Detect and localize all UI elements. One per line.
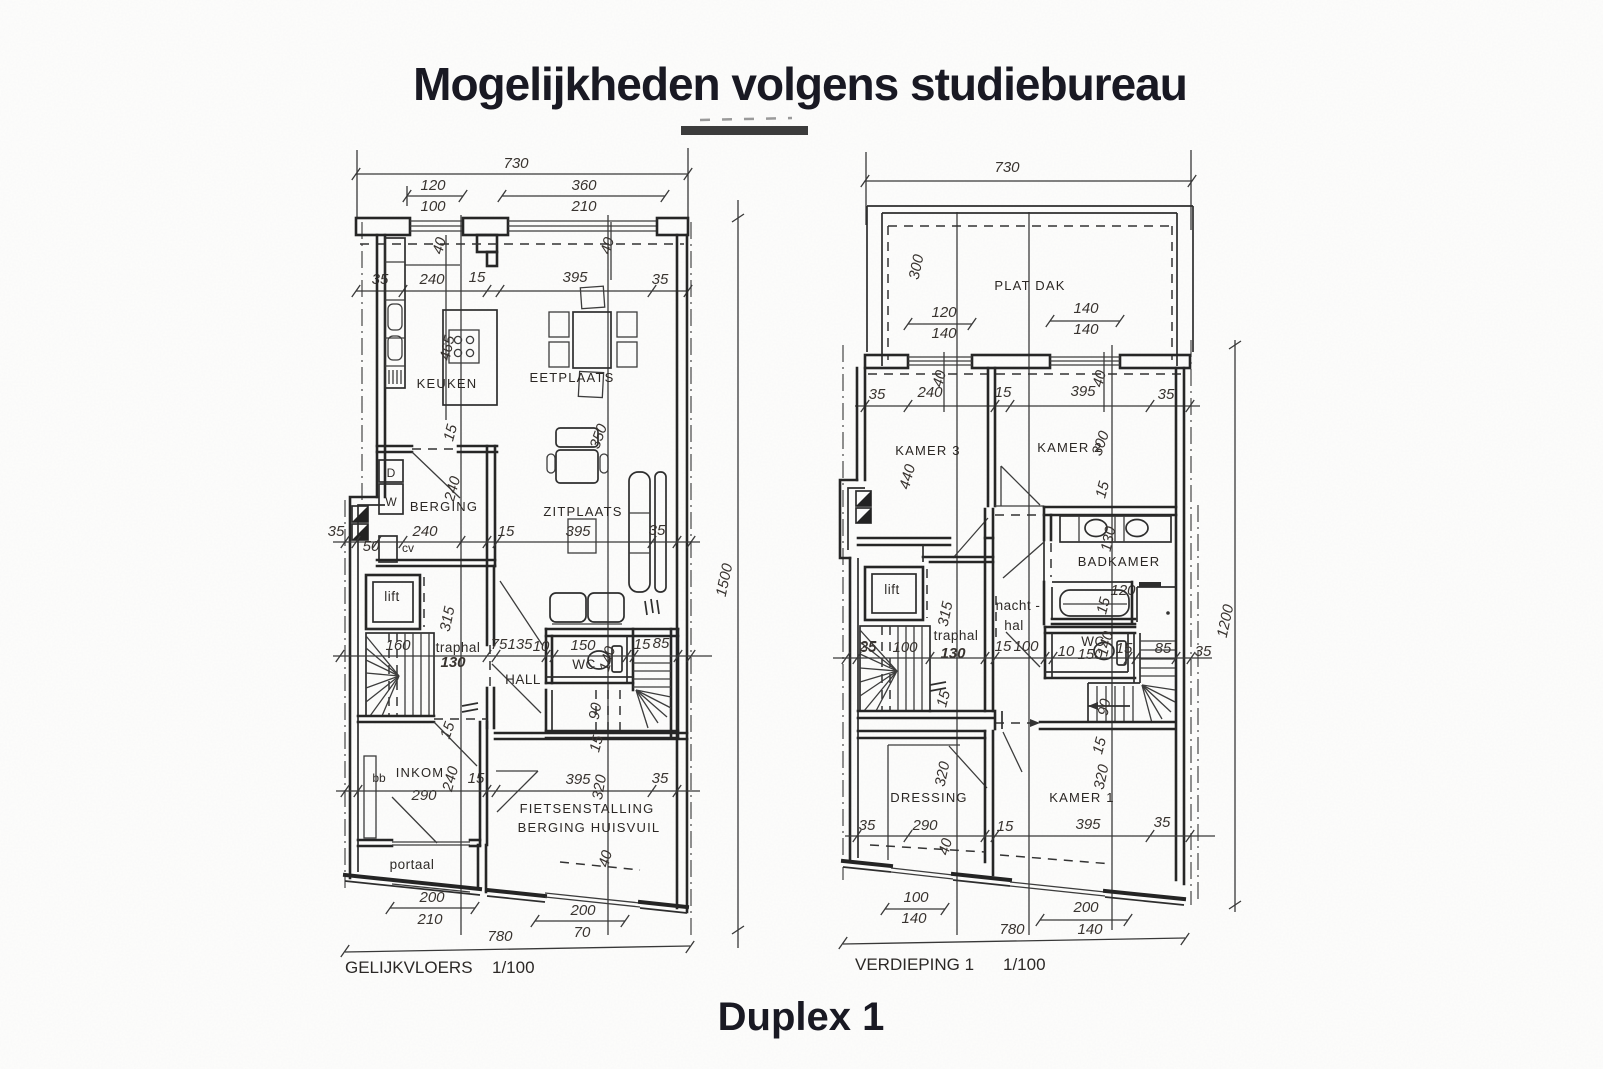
svg-text:130: 130 bbox=[940, 645, 966, 662]
svg-text:120: 120 bbox=[420, 177, 446, 194]
svg-text:35: 35 bbox=[328, 523, 345, 540]
svg-text:135: 135 bbox=[507, 636, 533, 653]
svg-text:140: 140 bbox=[1077, 921, 1103, 938]
svg-text:730: 730 bbox=[994, 159, 1020, 176]
svg-text:85: 85 bbox=[653, 635, 670, 652]
svg-text:10: 10 bbox=[533, 638, 550, 655]
svg-text:210: 210 bbox=[570, 198, 597, 215]
svg-text:70: 70 bbox=[574, 924, 591, 941]
svg-text:395: 395 bbox=[565, 771, 591, 788]
svg-text:35: 35 bbox=[859, 817, 876, 834]
svg-text:FIETSENSTALLING: FIETSENSTALLING bbox=[520, 801, 655, 816]
svg-text:780: 780 bbox=[999, 921, 1025, 938]
svg-text:D: D bbox=[387, 466, 396, 480]
svg-text:1/100: 1/100 bbox=[1003, 955, 1046, 974]
svg-text:1/100: 1/100 bbox=[492, 958, 535, 977]
svg-text:DRESSING: DRESSING bbox=[890, 790, 968, 805]
svg-text:KEUKEN: KEUKEN bbox=[417, 376, 478, 391]
svg-text:EETPLAATS: EETPLAATS bbox=[530, 370, 615, 385]
svg-text:traphal: traphal bbox=[436, 640, 481, 655]
svg-text:ZITPLAATS: ZITPLAATS bbox=[543, 504, 622, 519]
svg-text:portaal: portaal bbox=[390, 857, 435, 872]
svg-text:WC: WC bbox=[572, 657, 596, 672]
svg-text:160: 160 bbox=[385, 637, 411, 654]
svg-text:140: 140 bbox=[1073, 321, 1099, 338]
svg-text:15: 15 bbox=[1116, 640, 1133, 657]
svg-text:35: 35 bbox=[372, 271, 389, 288]
svg-text:150: 150 bbox=[570, 637, 596, 654]
svg-text:85: 85 bbox=[1155, 640, 1172, 657]
svg-text:BADKAMER: BADKAMER bbox=[1078, 554, 1161, 569]
svg-text:VERDIEPING 1: VERDIEPING 1 bbox=[855, 955, 974, 974]
svg-text:140: 140 bbox=[1073, 300, 1099, 317]
svg-text:Mogelijkheden volgens studiebu: Mogelijkheden volgens studiebureau bbox=[413, 58, 1187, 110]
svg-text:35: 35 bbox=[652, 271, 669, 288]
svg-text:HALL: HALL bbox=[505, 672, 541, 687]
svg-text:15: 15 bbox=[498, 523, 515, 540]
svg-text:PLAT DAK: PLAT DAK bbox=[994, 278, 1065, 293]
svg-text:35: 35 bbox=[1158, 386, 1175, 403]
svg-text:50: 50 bbox=[363, 538, 380, 555]
svg-text:35: 35 bbox=[1195, 643, 1212, 660]
svg-text:BERGING: BERGING bbox=[410, 499, 478, 514]
svg-text:75: 75 bbox=[491, 636, 508, 653]
svg-text:KAMER 1: KAMER 1 bbox=[1049, 790, 1114, 805]
svg-text:15: 15 bbox=[634, 636, 651, 653]
svg-text:15: 15 bbox=[995, 384, 1012, 401]
svg-text:100: 100 bbox=[892, 639, 918, 656]
svg-text:W: W bbox=[385, 495, 397, 509]
svg-text:lift: lift bbox=[384, 589, 400, 604]
svg-text:35: 35 bbox=[1154, 814, 1171, 831]
svg-text:120: 120 bbox=[931, 304, 957, 321]
svg-text:395: 395 bbox=[1075, 816, 1101, 833]
svg-text:GELIJKVLOERS: GELIJKVLOERS bbox=[345, 958, 473, 977]
svg-text:Duplex 1: Duplex 1 bbox=[718, 995, 885, 1039]
svg-text:lift: lift bbox=[884, 582, 900, 597]
svg-text:200: 200 bbox=[569, 902, 596, 919]
svg-text:25: 25 bbox=[859, 638, 877, 655]
svg-text:200: 200 bbox=[418, 889, 445, 906]
svg-text:200: 200 bbox=[1072, 899, 1099, 916]
svg-text:100: 100 bbox=[420, 198, 446, 215]
svg-text:hal: hal bbox=[1004, 618, 1024, 633]
svg-text:35: 35 bbox=[869, 386, 886, 403]
svg-text:cv: cv bbox=[402, 541, 414, 555]
svg-text:140: 140 bbox=[931, 325, 957, 342]
svg-text:290: 290 bbox=[911, 817, 938, 834]
svg-text:15: 15 bbox=[995, 638, 1012, 655]
svg-text:395: 395 bbox=[562, 269, 588, 286]
svg-text:100: 100 bbox=[1013, 638, 1039, 655]
svg-text:15: 15 bbox=[468, 770, 485, 787]
svg-text:KAMER 3: KAMER 3 bbox=[895, 443, 960, 458]
svg-text:780: 780 bbox=[487, 928, 513, 945]
svg-text:15: 15 bbox=[997, 818, 1014, 835]
svg-text:210: 210 bbox=[416, 911, 443, 928]
svg-text:traphal: traphal bbox=[934, 628, 979, 643]
svg-text:INKOM: INKOM bbox=[396, 765, 445, 780]
svg-text:15: 15 bbox=[469, 269, 486, 286]
svg-text:360: 360 bbox=[571, 177, 597, 194]
svg-text:240: 240 bbox=[411, 523, 438, 540]
svg-text:290: 290 bbox=[410, 787, 437, 804]
svg-text:35: 35 bbox=[652, 770, 669, 787]
svg-text:100: 100 bbox=[903, 889, 929, 906]
svg-text:395: 395 bbox=[1070, 383, 1096, 400]
svg-text:nacht -: nacht - bbox=[996, 598, 1041, 613]
svg-text:140: 140 bbox=[901, 910, 927, 927]
svg-text:BERGING HUISVUIL: BERGING HUISVUIL bbox=[518, 820, 661, 835]
svg-text:395: 395 bbox=[565, 523, 591, 540]
svg-text:730: 730 bbox=[503, 155, 529, 172]
svg-text:240: 240 bbox=[418, 271, 445, 288]
svg-text:bb: bb bbox=[372, 771, 386, 785]
svg-text:240: 240 bbox=[916, 384, 943, 401]
svg-text:35: 35 bbox=[649, 522, 666, 539]
